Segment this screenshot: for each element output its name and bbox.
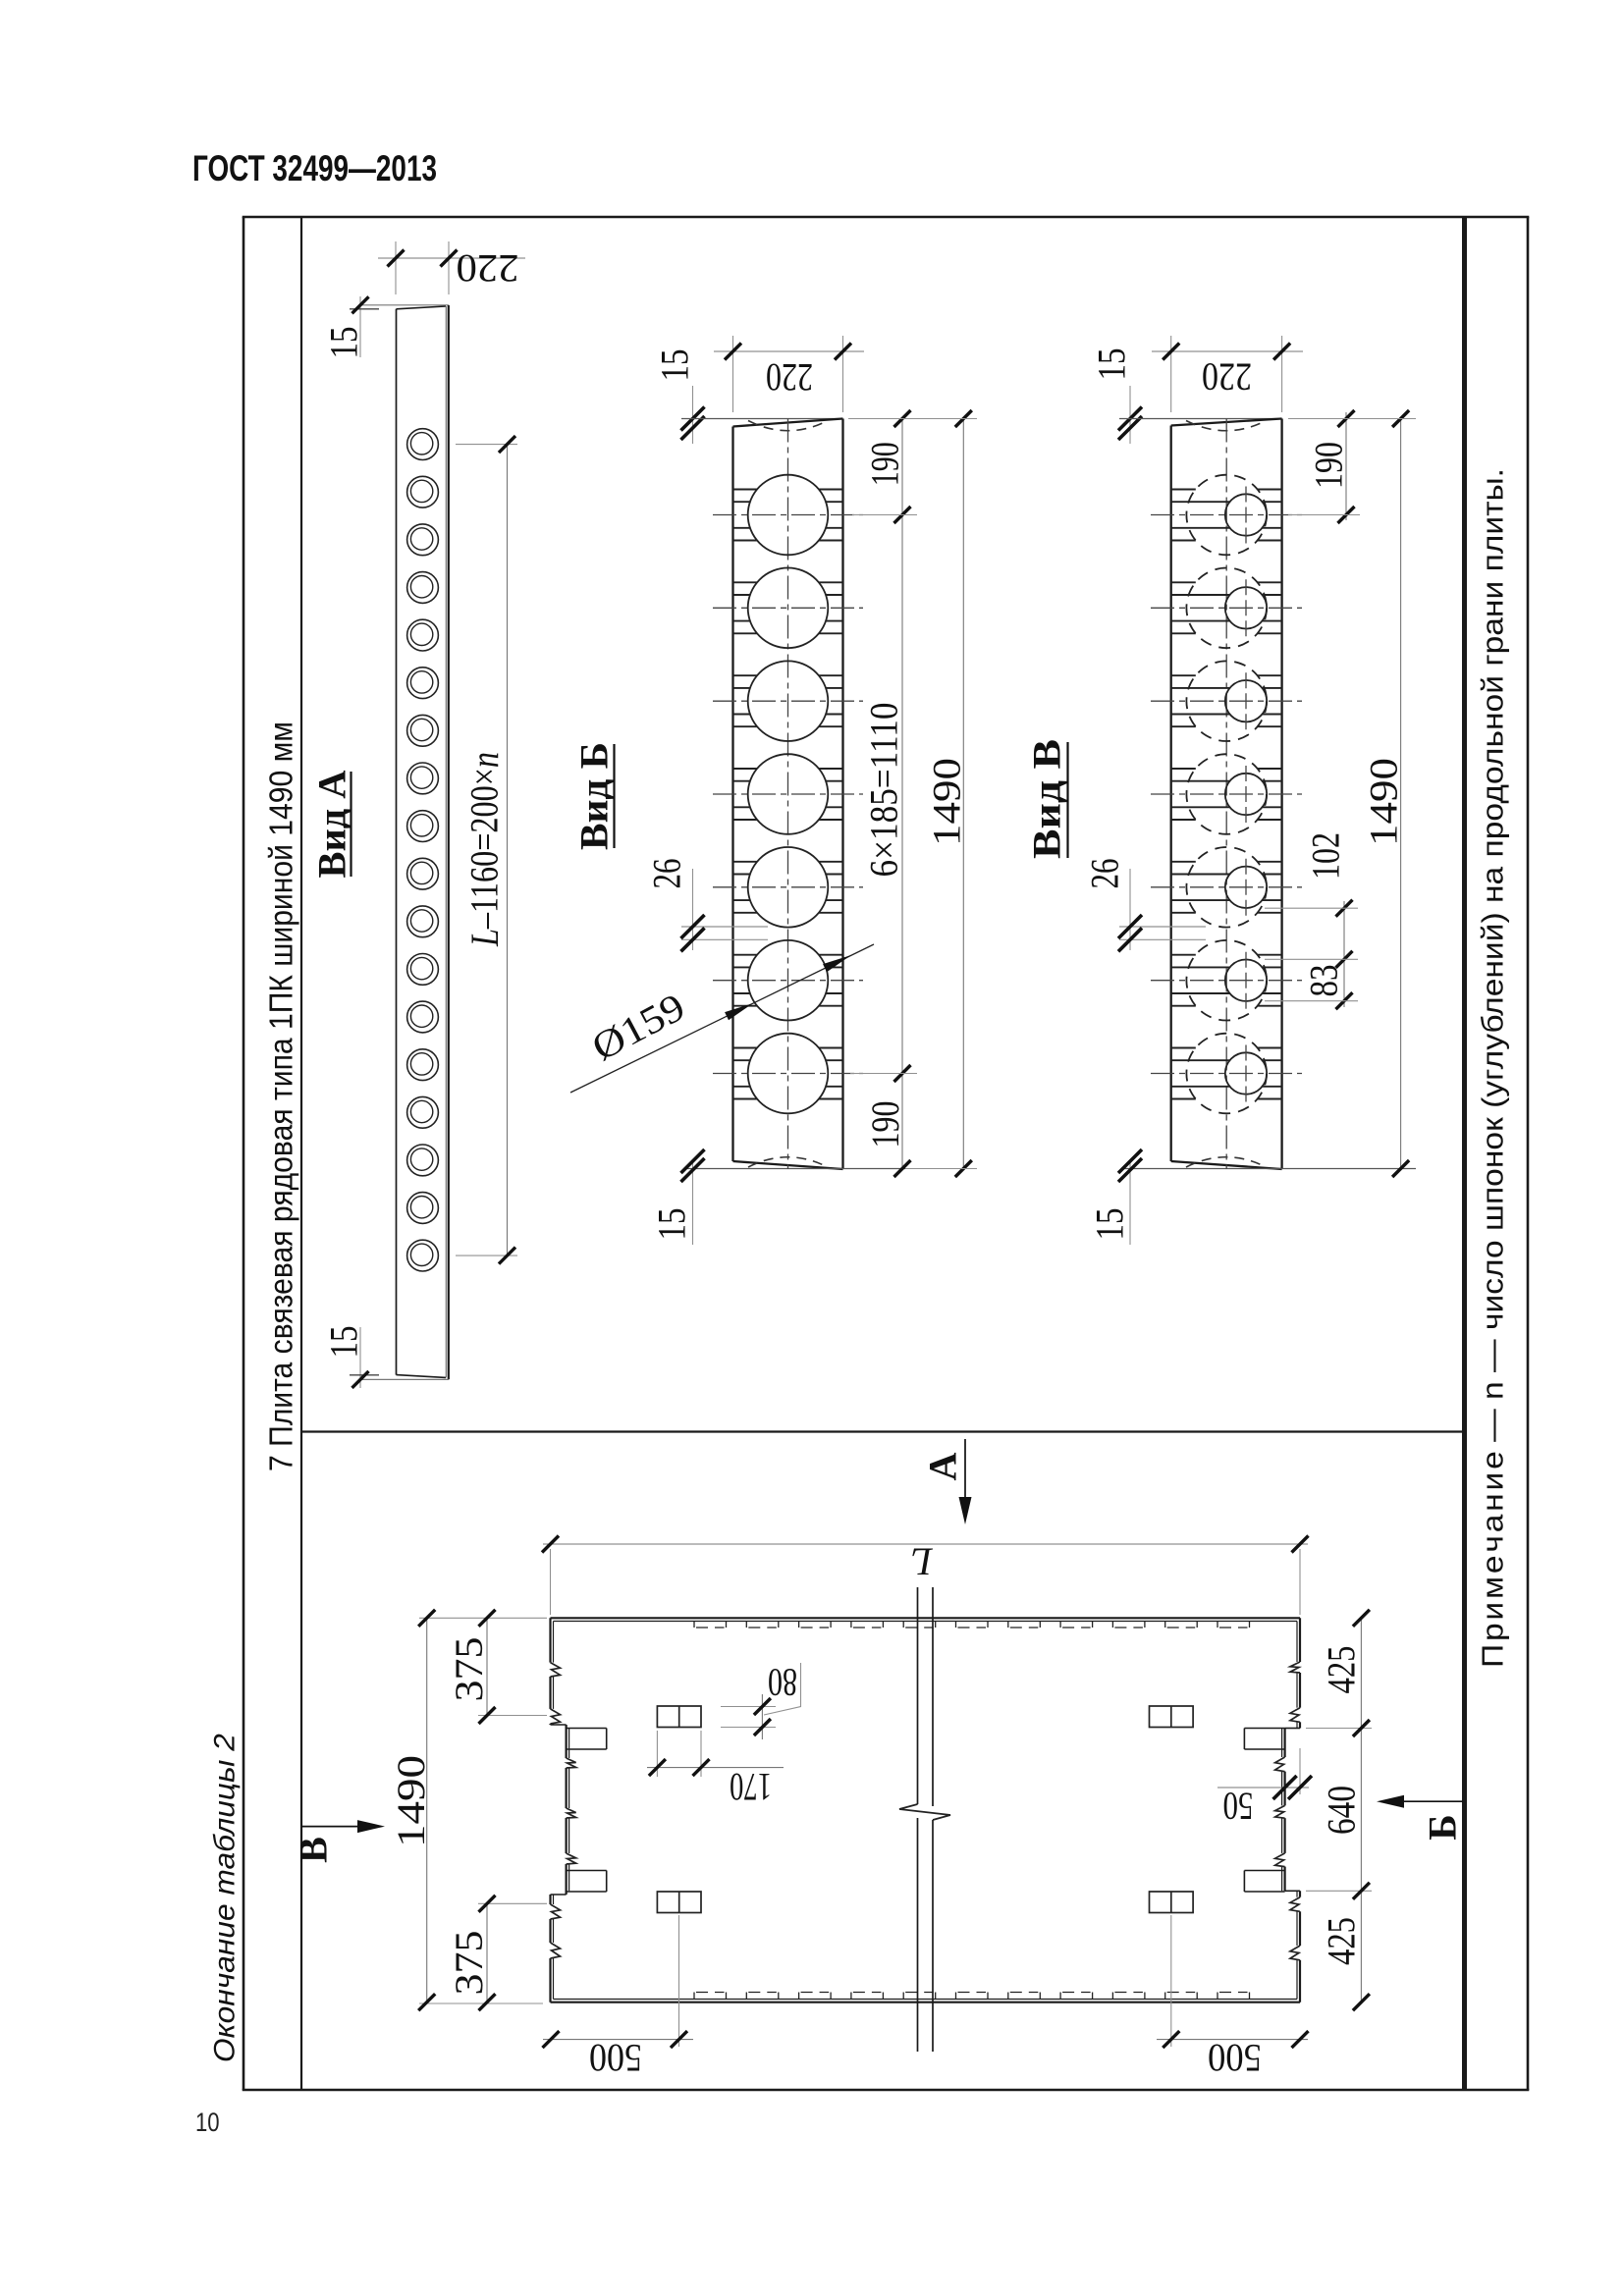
svg-text:15: 15 <box>322 327 366 359</box>
svg-text:Вид В: Вид В <box>1025 739 1069 859</box>
svg-text:26: 26 <box>1083 859 1127 889</box>
svg-text:425: 425 <box>1320 1917 1364 1965</box>
svg-text:15: 15 <box>322 1326 366 1359</box>
svg-text:500: 500 <box>589 2036 642 2080</box>
svg-text:L–1160=200×n: L–1160=200×n <box>462 752 507 947</box>
svg-text:А: А <box>921 1452 965 1480</box>
svg-text:15: 15 <box>653 349 697 382</box>
svg-text:1490: 1490 <box>1362 758 1406 846</box>
svg-text:220: 220 <box>1202 355 1252 400</box>
svg-text:220: 220 <box>766 355 813 400</box>
svg-text:Б: Б <box>1421 1814 1465 1840</box>
svg-text:190: 190 <box>863 442 907 486</box>
svg-text:15: 15 <box>1088 1208 1132 1241</box>
svg-text:26: 26 <box>645 859 689 889</box>
svg-text:Вид Б: Вид Б <box>572 742 617 850</box>
svg-text:Вид А: Вид А <box>310 770 354 878</box>
svg-text:80: 80 <box>768 1661 797 1705</box>
svg-text:ГОСТ 32499—2013: ГОСТ 32499—2013 <box>192 148 437 188</box>
svg-text:15: 15 <box>650 1208 694 1241</box>
svg-text:170: 170 <box>730 1765 772 1809</box>
svg-text:102: 102 <box>1304 832 1348 880</box>
svg-text:83: 83 <box>1302 965 1346 997</box>
svg-text:Окончание таблицы 2: Окончание таблицы 2 <box>209 1734 242 2062</box>
svg-text:10: 10 <box>195 2109 220 2138</box>
svg-text:L: L <box>910 1540 933 1584</box>
svg-text:500: 500 <box>1208 2036 1262 2080</box>
svg-text:6×185=1110: 6×185=1110 <box>862 703 906 878</box>
svg-text:7 Плита связевая рядовая типа: 7 Плита связевая рядовая типа 1ПК ширино… <box>263 721 299 1471</box>
svg-text:190: 190 <box>1307 442 1351 489</box>
svg-text:640: 640 <box>1320 1786 1364 1835</box>
svg-text:1490: 1490 <box>389 1755 433 1847</box>
svg-text:220: 220 <box>457 246 519 291</box>
svg-text:П р и м е ч а н и е — n — чис: П р и м е ч а н и е — n — число шпонок (… <box>1476 468 1510 1668</box>
svg-text:1490: 1490 <box>925 758 969 846</box>
svg-text:425: 425 <box>1320 1646 1364 1694</box>
svg-text:15: 15 <box>1090 348 1134 381</box>
svg-text:375: 375 <box>447 1931 491 1996</box>
svg-text:В: В <box>292 1837 336 1863</box>
svg-text:375: 375 <box>447 1637 491 1702</box>
svg-text:50: 50 <box>1223 1785 1254 1829</box>
svg-text:190: 190 <box>863 1101 907 1148</box>
